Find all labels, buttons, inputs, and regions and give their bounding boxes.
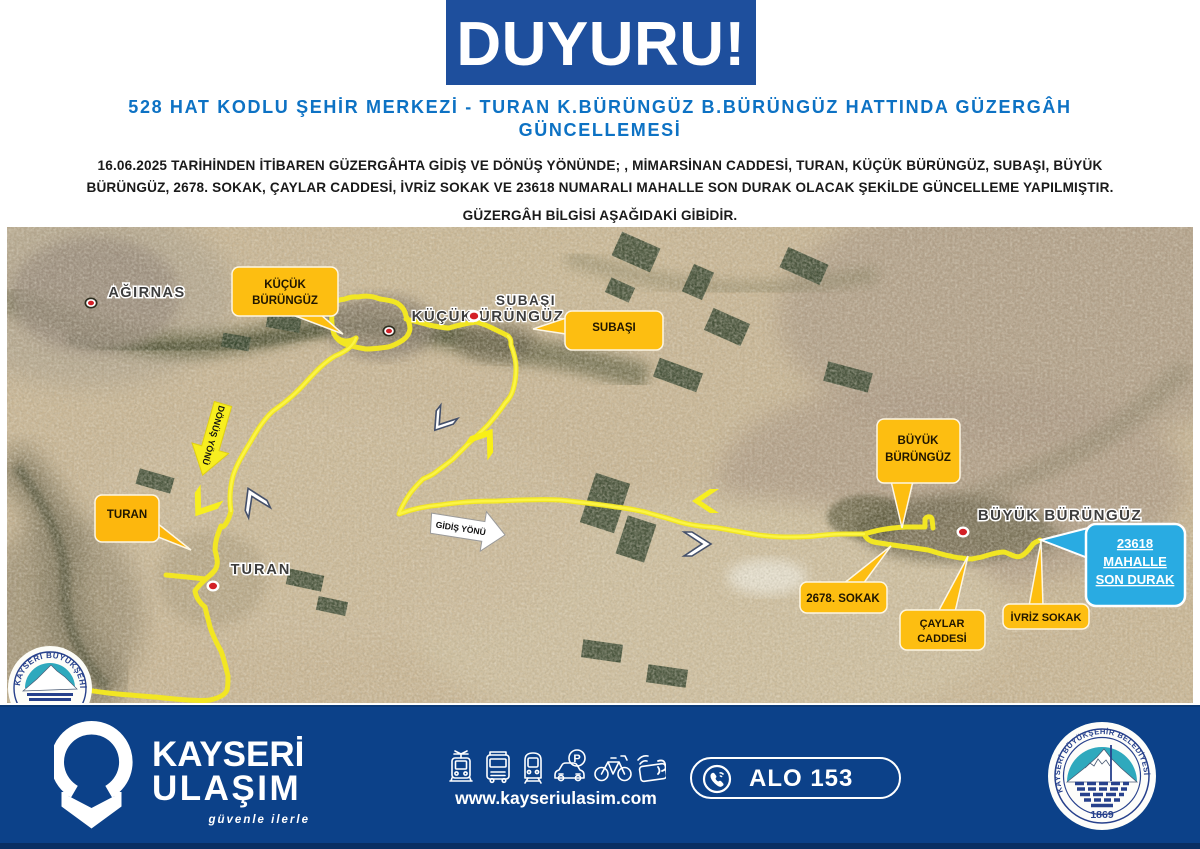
svg-text:TURAN: TURAN — [107, 509, 147, 521]
svg-text:BÜYÜK: BÜYÜK — [898, 434, 940, 447]
svg-text:23618: 23618 — [1117, 536, 1153, 551]
svg-text:2678. SOKAK: 2678. SOKAK — [806, 593, 880, 605]
svg-text:BÜYÜK BÜRÜNGÜZ: BÜYÜK BÜRÜNGÜZ — [978, 507, 1142, 524]
svg-text:İVRİZ SOKAK: İVRİZ SOKAK — [1011, 611, 1082, 624]
svg-text:BÜRÜNGÜZ: BÜRÜNGÜZ — [252, 294, 318, 307]
svg-text:KÜÇÜK: KÜÇÜK — [264, 278, 306, 291]
svg-text:SON DURAK: SON DURAK — [1096, 572, 1175, 587]
svg-text:KÜÇÜK ÜRÜNGÜZ: KÜÇÜK ÜRÜNGÜZ — [412, 308, 565, 325]
svg-text:1869: 1869 — [1090, 809, 1114, 821]
svg-text:BÜRÜNGÜZ: BÜRÜNGÜZ — [885, 451, 951, 464]
svg-text:MAHALLE: MAHALLE — [1103, 554, 1167, 569]
svg-text:TURAN: TURAN — [231, 562, 292, 578]
svg-text:CADDESİ: CADDESİ — [917, 632, 967, 645]
svg-text:SUBAŞI: SUBAŞI — [592, 322, 635, 334]
svg-text:SUBAŞI: SUBAŞI — [496, 293, 556, 308]
svg-text:AĞIRNAS: AĞIRNAS — [108, 283, 185, 301]
svg-text:ÇAYLAR: ÇAYLAR — [920, 618, 965, 630]
